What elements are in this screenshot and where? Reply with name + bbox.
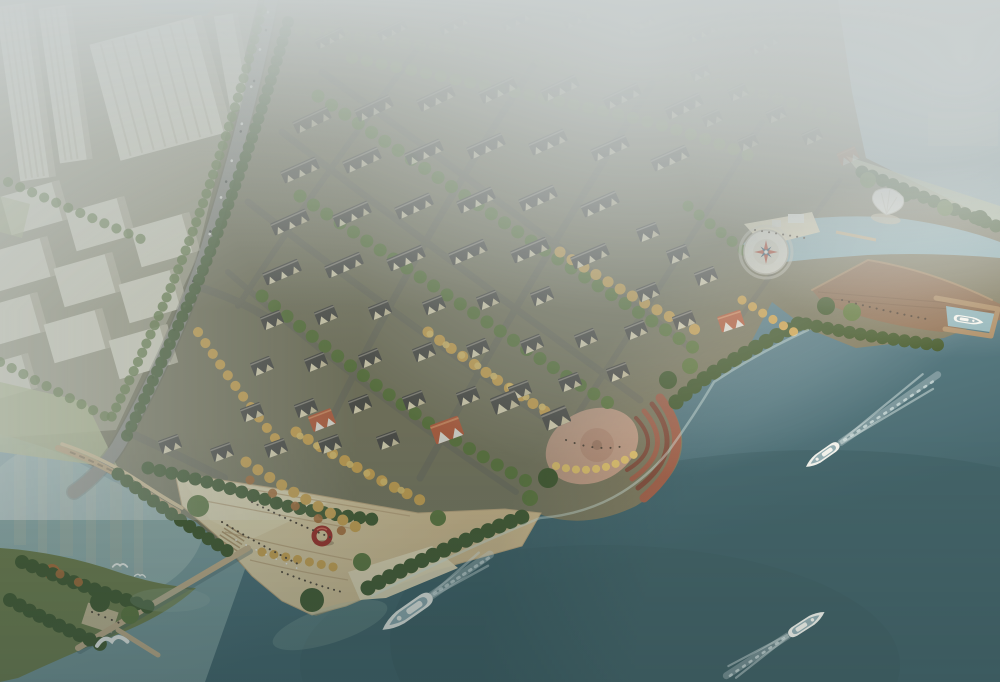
aerial-rendering-stage: Bird's-eye architectural rendering: a pe… xyxy=(0,0,1000,682)
atmosphere xyxy=(0,0,1000,682)
corner-vignette xyxy=(0,0,1000,682)
aerial-rendering: Bird's-eye architectural rendering: a pe… xyxy=(0,0,1000,682)
